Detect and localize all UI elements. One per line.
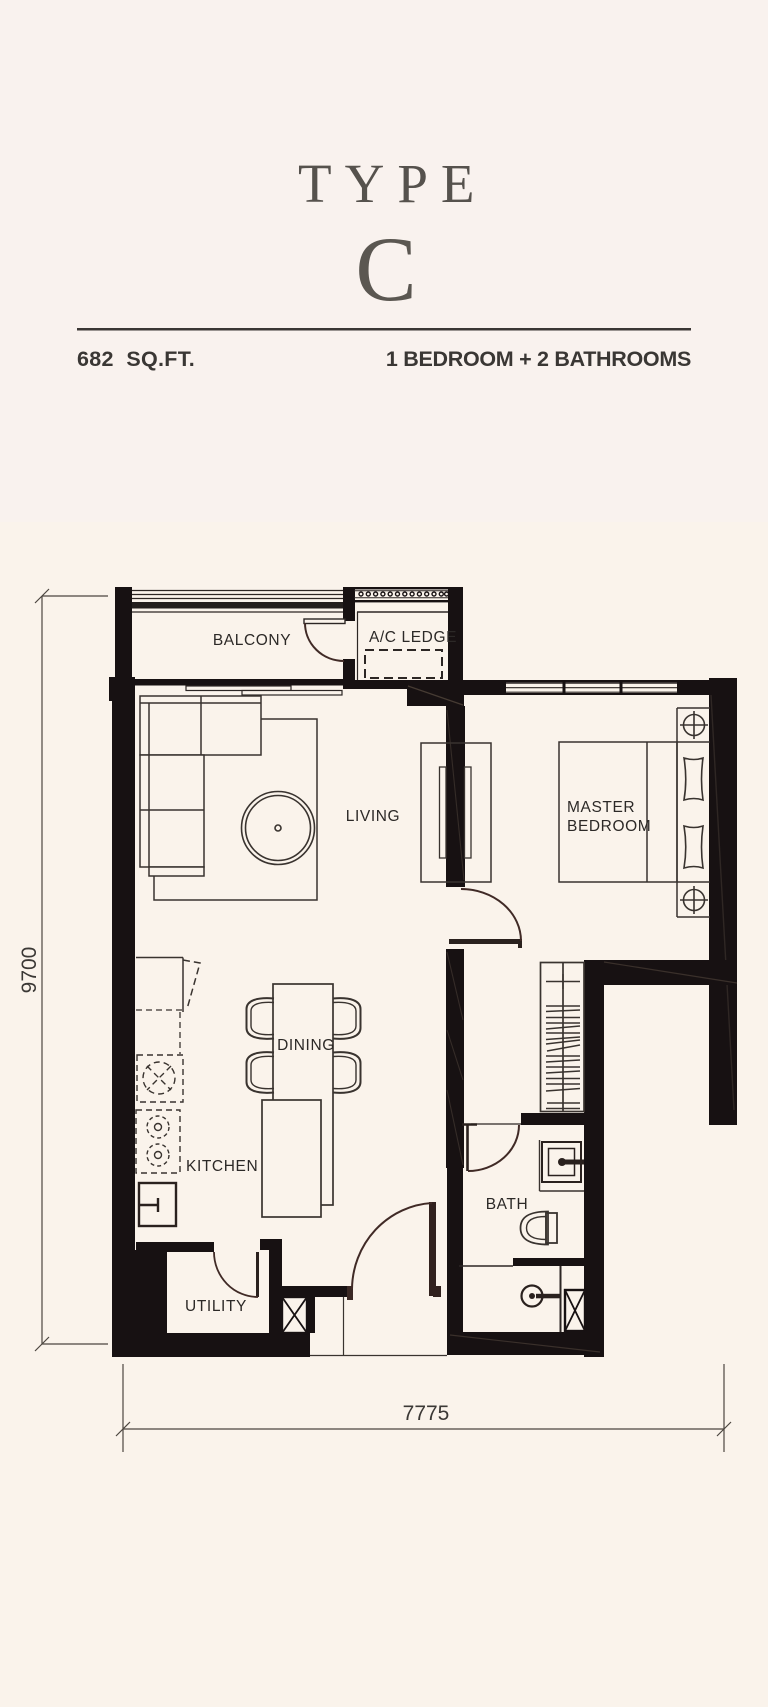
svg-text:A/C LEDGE: A/C LEDGE: [369, 629, 457, 646]
svg-text:C: C: [355, 218, 416, 320]
svg-text:DINING: DINING: [277, 1037, 335, 1054]
svg-text:BATH: BATH: [486, 1196, 529, 1213]
svg-text:BALCONY: BALCONY: [213, 632, 291, 649]
svg-text:MASTER: MASTER: [567, 799, 635, 816]
svg-text:UTILITY: UTILITY: [185, 1298, 247, 1315]
svg-text:TYPE: TYPE: [298, 153, 488, 214]
svg-text:KITCHEN: KITCHEN: [186, 1158, 258, 1175]
svg-text:9700: 9700: [18, 947, 41, 994]
svg-text:BEDROOM: BEDROOM: [567, 818, 651, 835]
svg-text:1 BEDROOM + 2 BATHROOMS: 1 BEDROOM + 2 BATHROOMS: [386, 347, 691, 371]
svg-text:LIVING: LIVING: [346, 808, 400, 825]
svg-text:682 SQ.FT.: 682 SQ.FT.: [77, 347, 195, 371]
svg-text:7775: 7775: [403, 1402, 450, 1425]
